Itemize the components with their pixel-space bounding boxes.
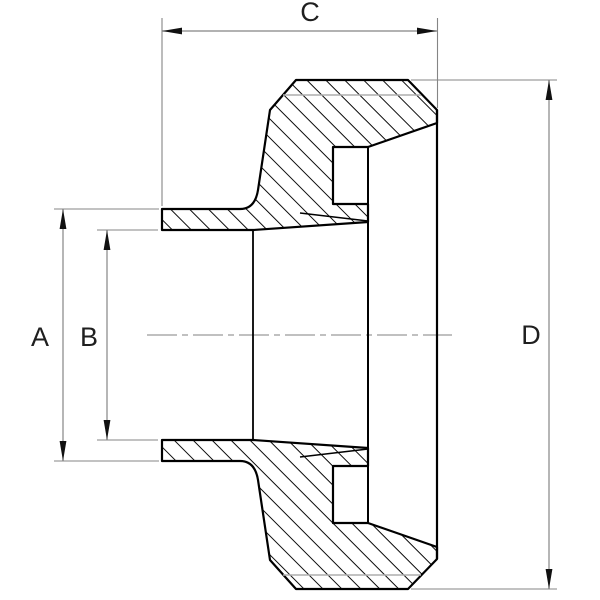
dimension-c-label: C — [300, 0, 320, 27]
technical-drawing-canvas: C A B D — [0, 0, 600, 600]
technical-drawing-page: C A B D — [0, 0, 600, 600]
dimension-b-label: B — [80, 322, 98, 352]
dimension-d-label: D — [521, 320, 541, 350]
dimension-a-label: A — [31, 322, 49, 352]
